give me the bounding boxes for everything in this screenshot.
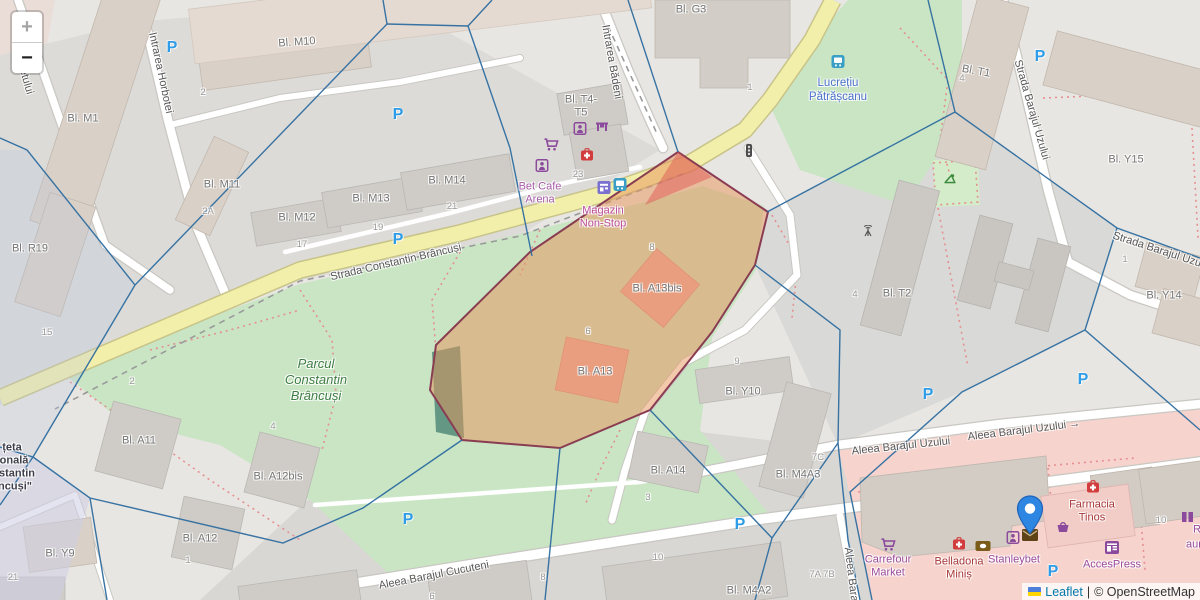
bus-stop-icon	[832, 55, 845, 73]
parking-icon: P	[923, 386, 934, 404]
arcade-icon	[536, 159, 549, 177]
shop-partial-icon	[1182, 510, 1194, 528]
playground-icon	[944, 171, 957, 189]
basket-icon	[1057, 520, 1070, 538]
attribution-separator: |	[1087, 585, 1090, 599]
first-aid-icon	[581, 148, 594, 166]
zoom-out-button[interactable]: −	[12, 43, 42, 73]
newsagent-icon	[1105, 541, 1119, 559]
zoom-control: + −	[12, 12, 42, 73]
attribution-bar: Leaflet | © OpenStreetMap	[1022, 583, 1200, 600]
leaflet-link[interactable]: Leaflet	[1045, 585, 1083, 599]
parking-icon: P	[1035, 48, 1046, 66]
parking-icon: P	[393, 231, 404, 249]
parking-icon: P	[1078, 371, 1089, 389]
kiosk-icon	[598, 181, 611, 199]
ukraine-flag-icon	[1028, 587, 1041, 596]
map-canvas[interactable]: Intrarea HorboteichetuluiIntrarea Bădeni…	[0, 0, 1200, 600]
parking-icon: P	[735, 516, 746, 534]
map-marker-icon[interactable]	[1016, 495, 1044, 540]
money-exchange-icon	[976, 538, 991, 556]
openstreetmap-link[interactable]: © OpenStreetMap	[1094, 585, 1195, 599]
first-aid-icon	[953, 537, 966, 555]
parking-icon: P	[393, 106, 404, 124]
map-icons-layer: PPPPPPPPP	[0, 0, 1200, 600]
parking-icon: P	[403, 511, 414, 529]
shopping-cart-icon	[544, 138, 559, 156]
parking-icon: P	[167, 39, 178, 57]
bus-stop-icon	[614, 178, 627, 196]
first-aid-icon	[1087, 480, 1100, 498]
shopping-cart-icon	[881, 538, 896, 556]
table-icon	[595, 119, 609, 137]
antenna-icon	[862, 224, 874, 242]
zoom-in-button[interactable]: +	[12, 12, 42, 43]
parking-icon: P	[1048, 563, 1059, 581]
traffic-light-icon	[745, 144, 753, 163]
arcade-icon	[574, 122, 587, 140]
